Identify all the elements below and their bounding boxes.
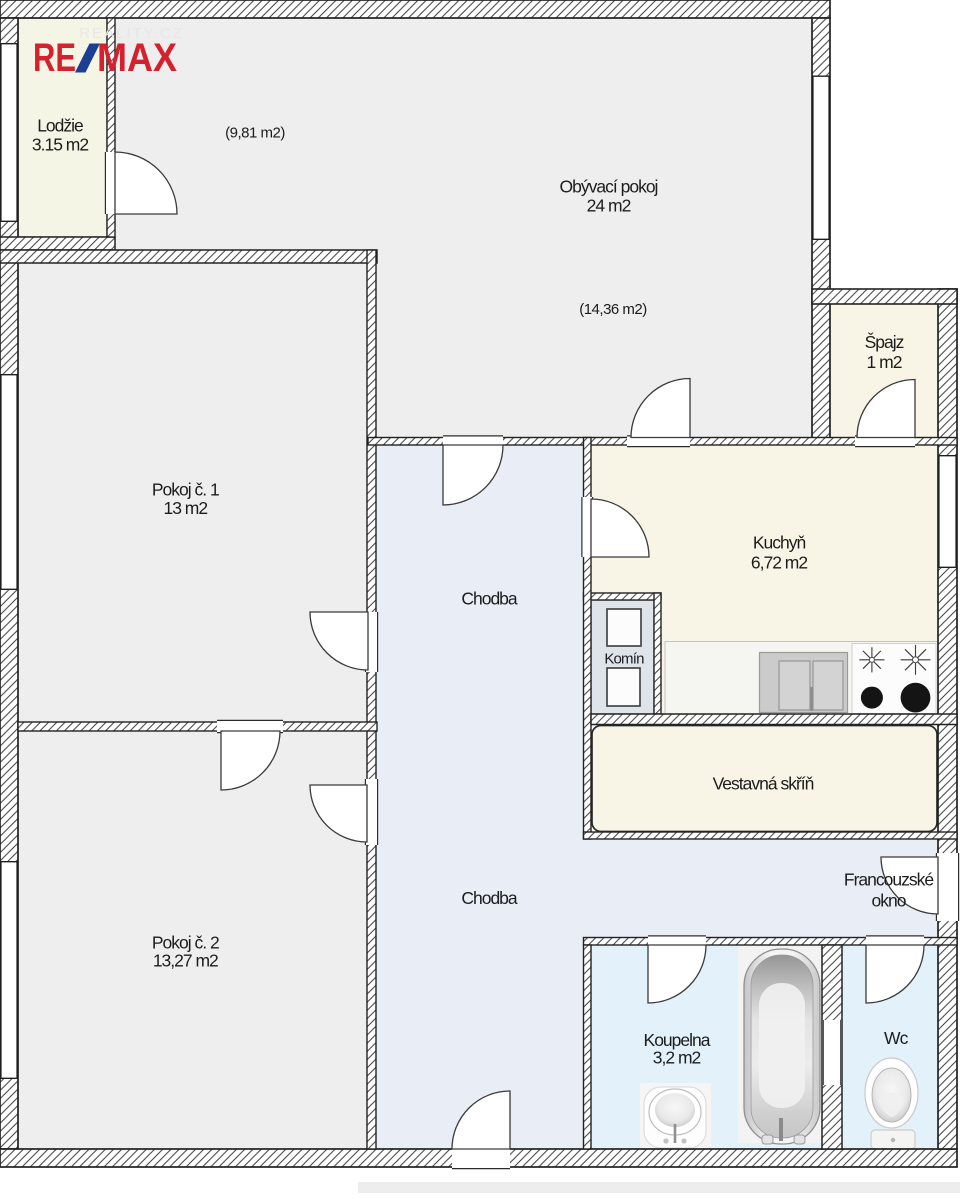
svg-text:Vestavná skříň: Vestavná skříň bbox=[713, 774, 814, 794]
svg-text:(9,81 m2): (9,81 m2) bbox=[225, 125, 285, 142]
svg-text:Wc: Wc bbox=[884, 1028, 909, 1048]
svg-text:MAX: MAX bbox=[97, 36, 177, 80]
svg-text:Pokoj č. 213,27 m2: Pokoj č. 213,27 m2 bbox=[152, 933, 219, 971]
svg-text:Lodžie3.15 m2: Lodžie3.15 m2 bbox=[32, 116, 88, 155]
svg-text:Chodba: Chodba bbox=[461, 888, 518, 908]
svg-text:Špajz1 m2: Špajz1 m2 bbox=[865, 331, 904, 372]
svg-text:Chodba: Chodba bbox=[461, 589, 518, 609]
svg-text:(14,36 m2): (14,36 m2) bbox=[579, 301, 647, 318]
svg-text:RE: RE bbox=[33, 36, 76, 80]
svg-text:Komín: Komín bbox=[604, 651, 644, 668]
svg-text:Kuchyň6,72 m2: Kuchyň6,72 m2 bbox=[751, 533, 807, 573]
